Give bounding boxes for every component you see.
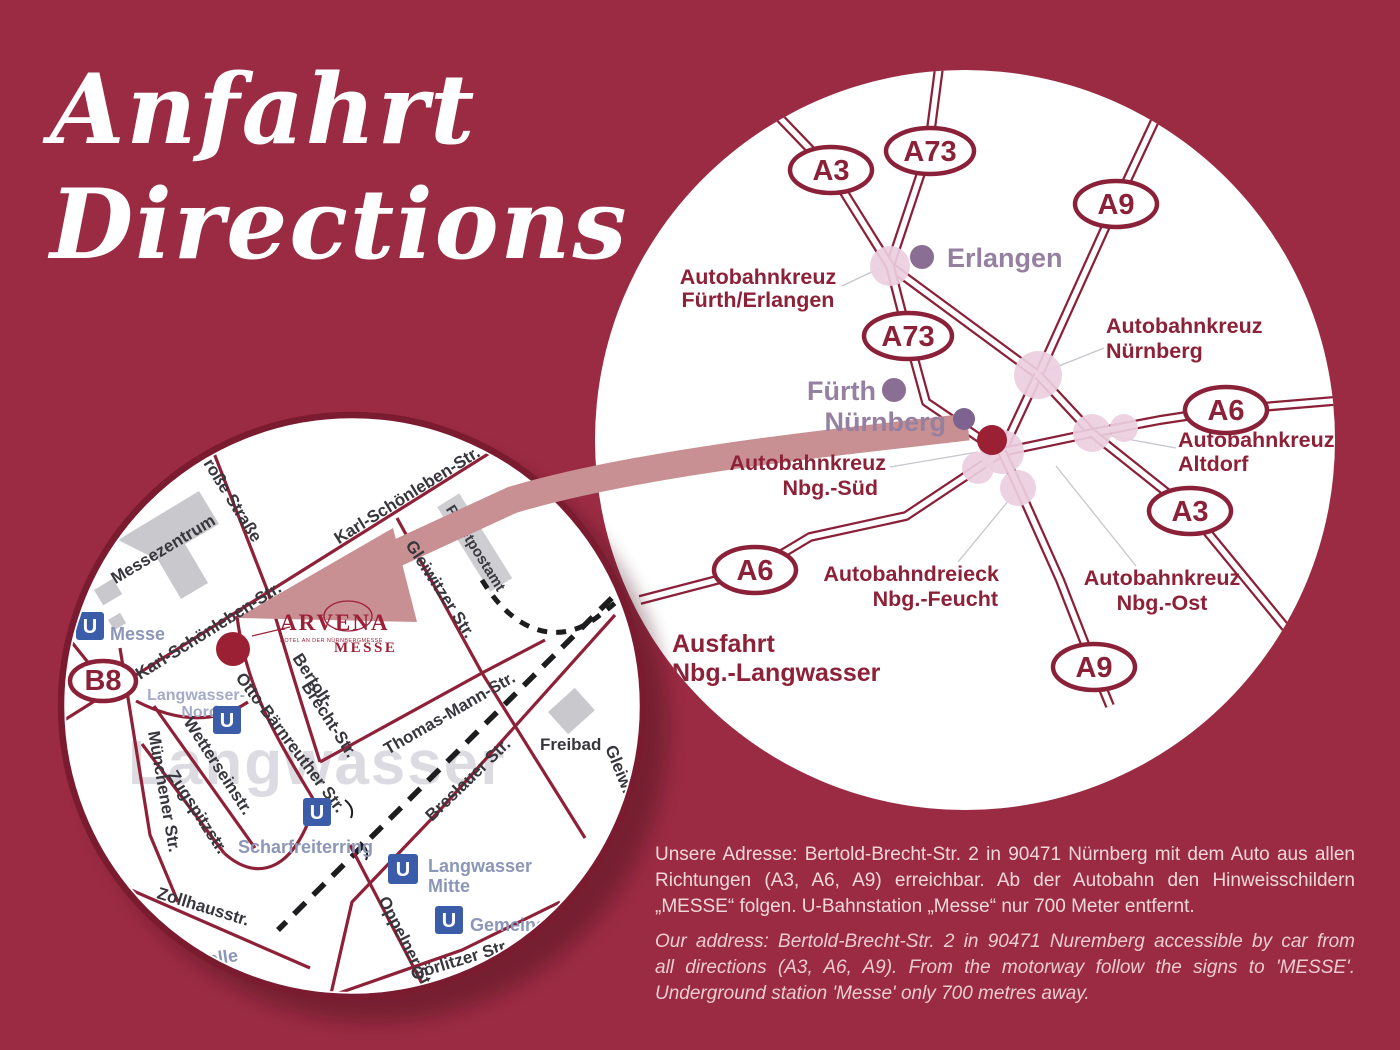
- svg-text:Nbg.-Süd: Nbg.-Süd: [782, 476, 878, 500]
- autobahn-badge-a9-south: A9: [1053, 644, 1135, 690]
- station-label-langwasser: Langwasser-: [147, 687, 245, 704]
- svg-text:Autobahnkreuz: Autobahnkreuz: [680, 265, 836, 289]
- station-label-langwasser-mitte-2: Mitte: [428, 876, 470, 896]
- autobahn-badge-a9-north: A9: [1075, 181, 1157, 227]
- address-text-german: Unsere Adresse: Bertold-Brecht-Str. 2 in…: [655, 842, 1355, 921]
- svg-text:Nbg.-Langwasser: Nbg.-Langwasser: [672, 659, 881, 687]
- directions-poster: Langwasser Paketpostamt: [0, 0, 1400, 1050]
- svg-text:Autobahndreieck: Autobahndreieck: [823, 562, 999, 586]
- svg-text:Nbg.-Feucht: Nbg.-Feucht: [873, 587, 998, 611]
- logo-division: MESSE: [334, 640, 397, 656]
- address-text-english: Our address: Bertold-Brecht-Str. 2 in 90…: [655, 929, 1355, 1008]
- city-label-erlangen: Erlangen: [947, 243, 1063, 273]
- svg-text:A9: A9: [1075, 652, 1112, 684]
- svg-text:Autobahnkreuz: Autobahnkreuz: [1106, 314, 1262, 338]
- svg-text:A6: A6: [736, 555, 773, 587]
- autobahn-badge-a6-west: A6: [714, 547, 796, 593]
- address-en-line2: all directions (A3, A6, A9). From the mo…: [655, 955, 1355, 981]
- svg-text:Fürth/Erlangen: Fürth/Erlangen: [682, 288, 835, 312]
- svg-text:Autobahnkreuz: Autobahnkreuz: [1084, 566, 1240, 590]
- interchange-halo-altdorf-2: [1110, 414, 1138, 442]
- city-dot-erlangen: [910, 245, 934, 269]
- address-de-line1: Unsere Adresse: Bertold-Brecht-Str. 2 in…: [655, 842, 1355, 868]
- poster-title: Anfahrt Directions: [50, 52, 629, 282]
- interchange-halo-nbg-feucht: [1000, 470, 1036, 506]
- address-de-line3: „MESSE“ folgen. U-Bahnstation „Messe“ nu…: [655, 894, 1355, 920]
- route-badge-b8-label: B8: [84, 665, 121, 697]
- interchange-halo-altdorf: [1073, 414, 1111, 452]
- svg-text:Ausfahrt: Ausfahrt: [672, 630, 775, 658]
- title-line-anfahrt: Anfahrt: [50, 52, 629, 167]
- city-dot-nuernberg: [953, 408, 975, 430]
- autobahn-badge-a73-north: A73: [886, 128, 974, 174]
- ubahn-icon-letter: U: [442, 910, 456, 932]
- station-label-messe: Messe: [110, 624, 165, 644]
- station-label-langwasser-mitte-1: Langwasser: [428, 856, 532, 876]
- svg-text:Nbg.-Ost: Nbg.-Ost: [1117, 591, 1208, 615]
- hotel-marker-overview: [977, 425, 1007, 455]
- interchange-halo-nbg-sued-2: [962, 452, 994, 484]
- city-label-fuerth: Fürth: [807, 376, 876, 406]
- junction-label-fuerth-erlangen: Autobahnkreuz Fürth/Erlangen: [680, 265, 836, 312]
- svg-text:Nürnberg: Nürnberg: [1106, 339, 1203, 363]
- city-label-nuernberg: Nürnberg: [825, 407, 947, 437]
- ubahn-icon-letter: U: [83, 616, 97, 638]
- svg-text:A6: A6: [1207, 395, 1244, 427]
- address-de-line2: Richtungen (A3, A6, A9) erreichbar. Ab d…: [655, 868, 1355, 894]
- city-dot-fuerth: [882, 378, 906, 402]
- autobahn-badge-a3-southeast: A3: [1149, 488, 1231, 534]
- hotel-marker: [216, 632, 250, 666]
- svg-text:Autobahnkreuz: Autobahnkreuz: [730, 451, 886, 475]
- freibad-label: Freibad: [540, 735, 601, 754]
- svg-text:Autobahnkreuz: Autobahnkreuz: [1178, 428, 1334, 452]
- autobahn-badge-a73-mid: A73: [864, 313, 952, 359]
- svg-text:A9: A9: [1097, 189, 1134, 221]
- ubahn-icon-letter: U: [220, 710, 234, 732]
- address-en-line3: Underground station 'Messe' only 700 met…: [655, 981, 1355, 1007]
- svg-text:A3: A3: [812, 155, 849, 187]
- interchange-halo-nuernberg: [1014, 351, 1062, 399]
- autobahn-badge-a6-east: A6: [1185, 387, 1267, 433]
- address-en-line1: Our address: Bertold-Brecht-Str. 2 in 90…: [655, 929, 1355, 955]
- ubahn-icon-letter: U: [396, 859, 410, 881]
- station-label-scharfreiterring: Scharfreiterring: [238, 837, 373, 857]
- svg-text:Altdorf: Altdorf: [1178, 452, 1249, 476]
- interchange-halo-fuerth-erlangen: [870, 246, 910, 286]
- autobahn-badge-a3-north: A3: [790, 147, 872, 193]
- svg-text:A73: A73: [881, 321, 934, 353]
- ubahn-icon-letter: U: [310, 802, 324, 824]
- title-line-directions: Directions: [50, 167, 629, 282]
- logo-name: ARVENA: [280, 610, 390, 635]
- svg-text:A3: A3: [1171, 496, 1208, 528]
- svg-text:A73: A73: [903, 136, 956, 168]
- route-badge-b8: B8: [70, 661, 136, 701]
